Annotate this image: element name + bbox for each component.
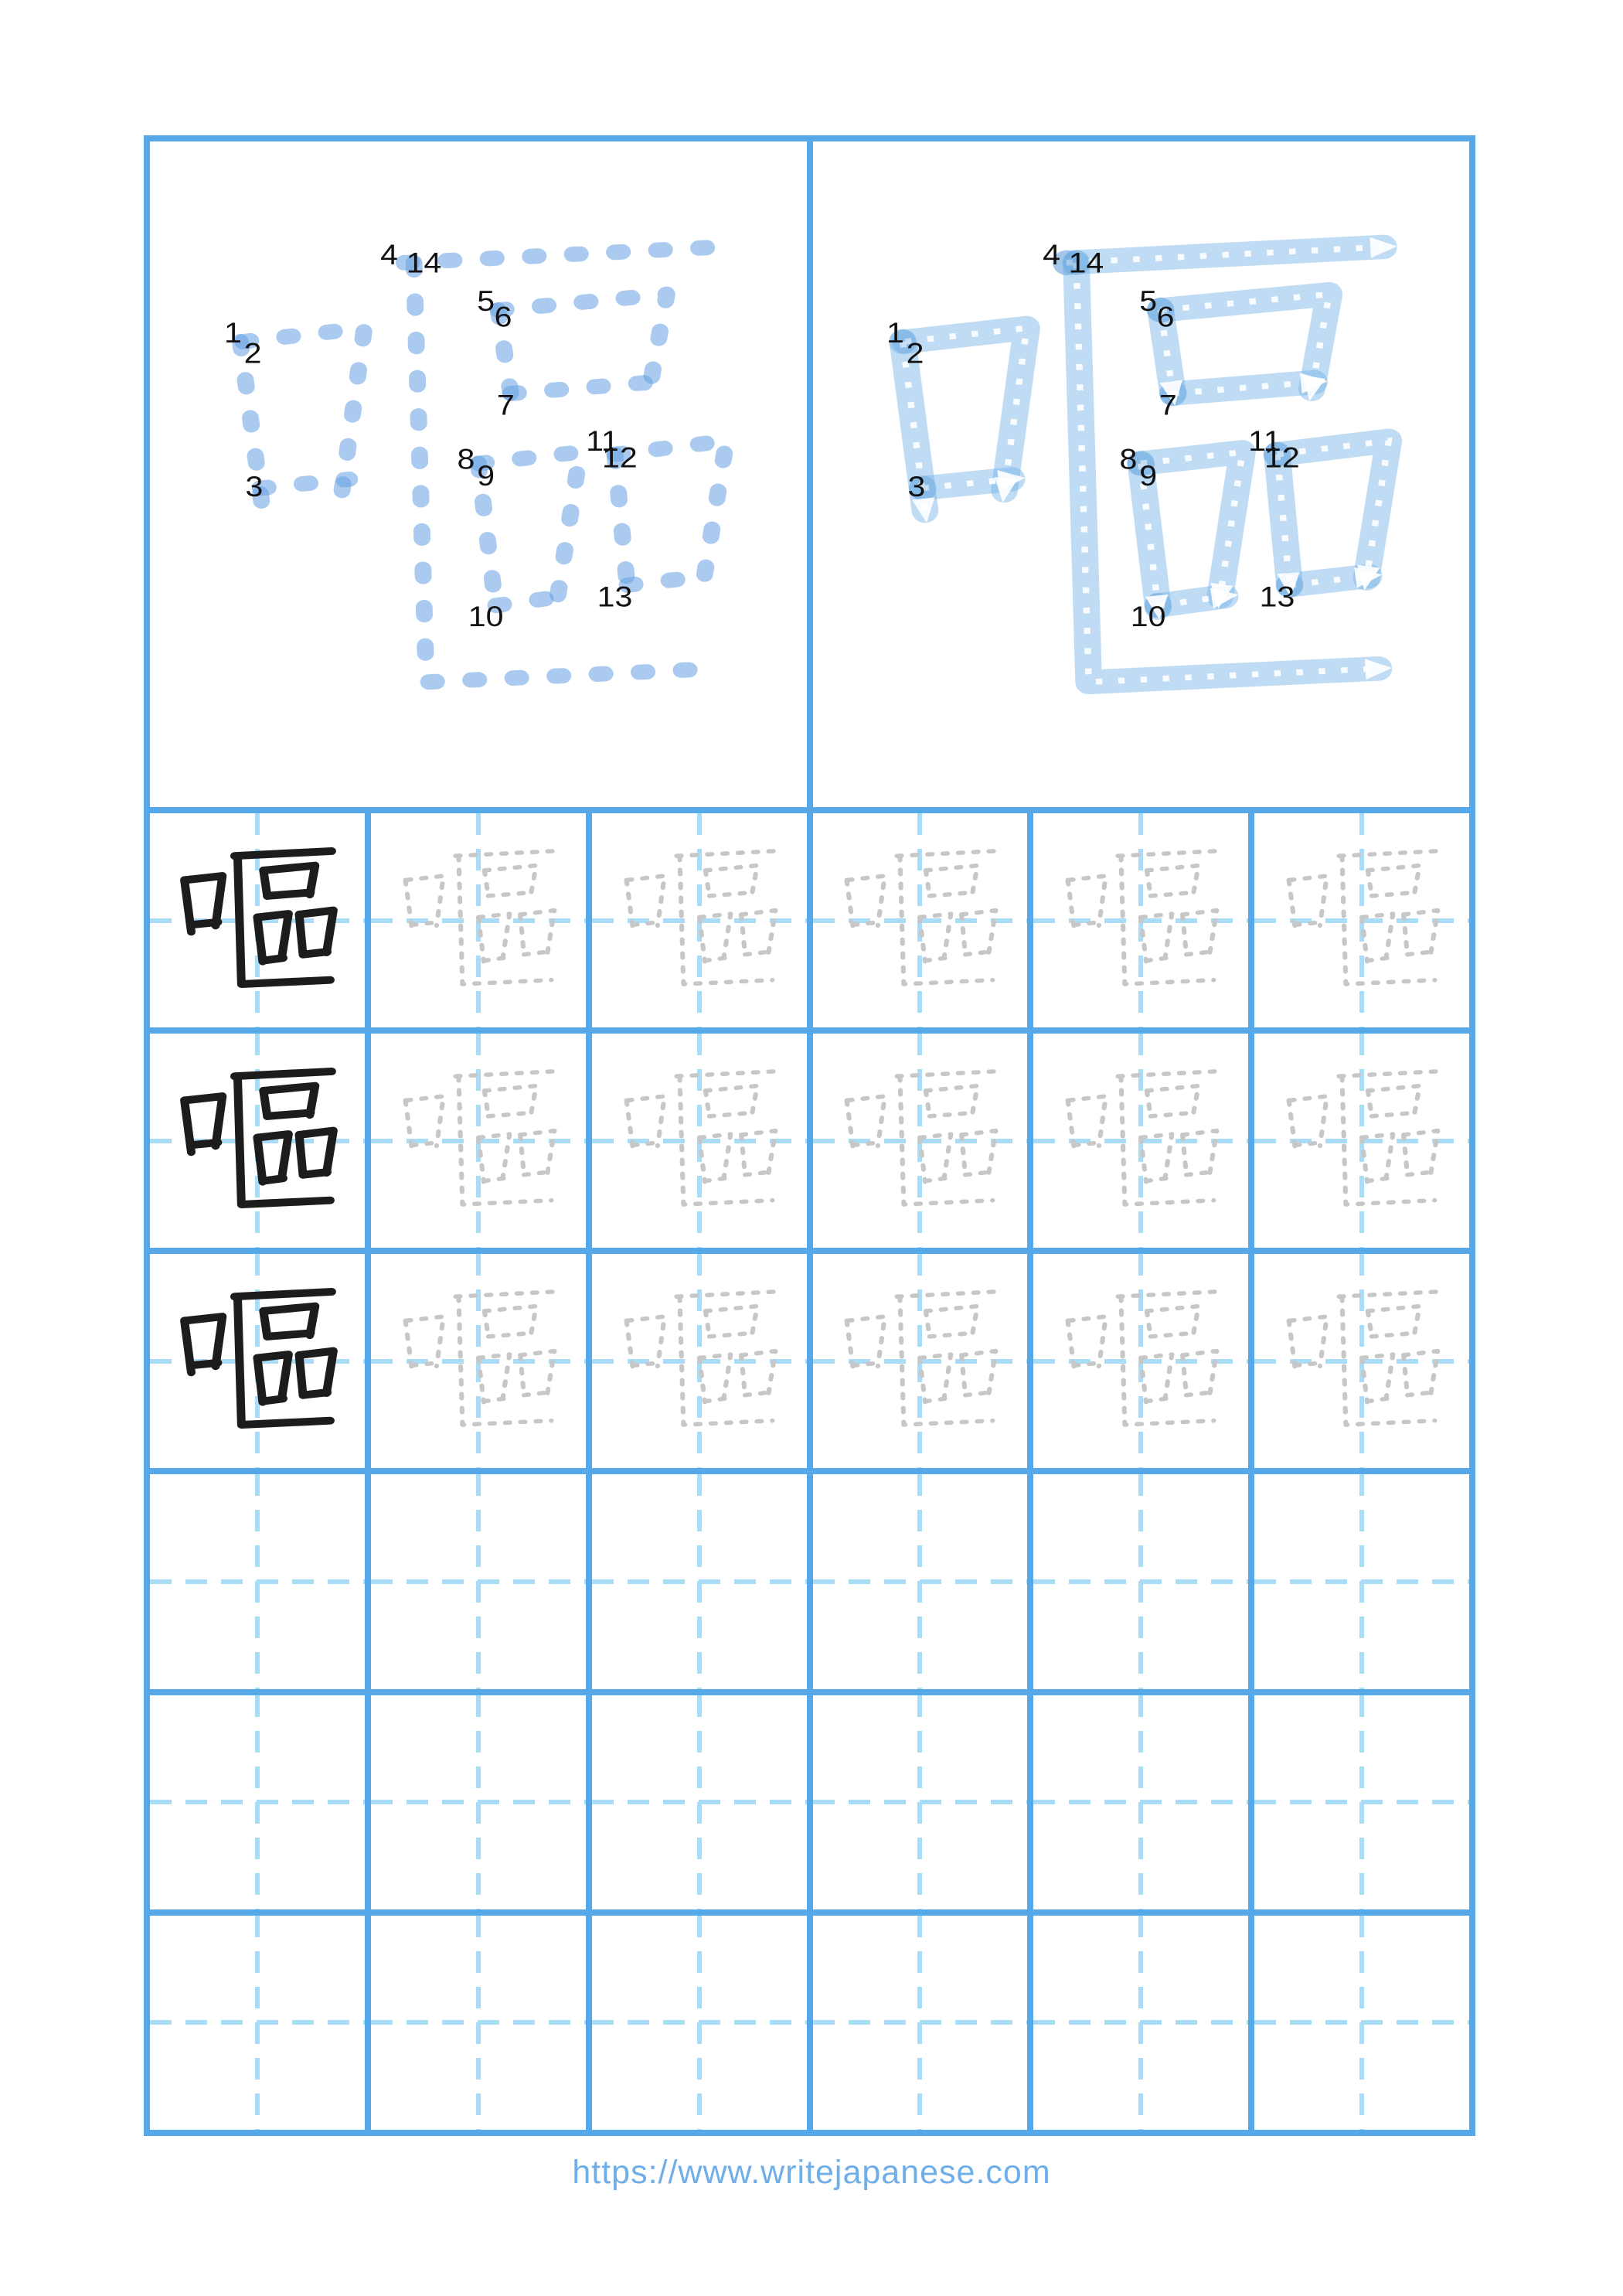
example-kanji-black [166,1058,349,1224]
practice-cell-r1c4 [813,813,1028,1027]
practice-cell-r5c6 [1254,1695,1469,1909]
practice-cell-r3c5 [1033,1254,1248,1468]
center-guide-vertical [1359,1695,1364,1909]
practice-cell-r6c1 [150,1916,365,2130]
practice-cell-r2c4 [813,1034,1028,1248]
practice-cell-r2c1 [150,1034,365,1248]
example-kanji-black [166,1279,349,1444]
trace-kanji-gray [829,838,1011,1003]
center-guide-vertical [917,1695,922,1909]
practice-cell-r2c6 [1254,1034,1469,1248]
trace-kanji-gray [608,1058,791,1224]
example-kanji-black [166,838,349,1003]
center-guide-vertical [1138,1474,1143,1688]
center-guide-vertical [476,1695,481,1909]
center-guide-vertical [255,1695,260,1909]
trace-kanji-gray [1050,1279,1232,1444]
center-guide-vertical [476,1474,481,1688]
kanji-stroke-order-guided [843,204,1438,745]
practice-cell-r6c4 [813,1916,1028,2130]
practice-cell-r1c3 [592,813,807,1027]
practice-cell-r3c4 [813,1254,1028,1468]
practice-cell-r1c2 [371,813,586,1027]
practice-cell-r2c3 [592,1034,807,1248]
center-guide-vertical [1359,1916,1364,2130]
center-guide-vertical [1138,1695,1143,1909]
stroke-order-diagram-guided [813,141,1470,807]
kanji-practice-worksheet: 1 2 3 4 5 6 7 8 9 10 11 12 13 14 [0,0,1623,2296]
practice-cell-r6c6 [1254,1916,1469,2130]
practice-cell-r3c1 [150,1254,365,1468]
practice-grid [144,807,1475,2136]
center-guide-vertical [697,1916,702,2130]
practice-cell-r5c1 [150,1695,365,1909]
trace-kanji-gray [387,1058,570,1224]
practice-cell-r6c3 [592,1916,807,2130]
center-guide-vertical [1359,1474,1364,1688]
practice-cell-r4c3 [592,1474,807,1688]
practice-cell-r5c3 [592,1695,807,1909]
center-guide-vertical [255,1474,260,1688]
practice-cell-r4c1 [150,1474,365,1688]
practice-cell-r3c6 [1254,1254,1469,1468]
practice-cell-r6c5 [1033,1916,1248,2130]
practice-cell-r2c5 [1033,1034,1248,1248]
stroke-order-section [144,135,1475,807]
stroke-order-diagram-dashed [150,141,813,807]
trace-kanji-gray [829,1279,1011,1444]
website-url: https://www.writejapanese.com [0,2154,1623,2192]
center-guide-vertical [697,1695,702,1909]
practice-cell-r4c5 [1033,1474,1248,1688]
practice-cell-r5c2 [371,1695,586,1909]
trace-kanji-gray [608,838,791,1003]
kanji-stroke-order-dashed [181,204,776,745]
center-guide-vertical [255,1916,260,2130]
trace-kanji-gray [387,838,570,1003]
practice-cell-r4c6 [1254,1474,1469,1688]
center-guide-vertical [476,1916,481,2130]
trace-kanji-gray [608,1279,791,1444]
practice-cell-r1c5 [1033,813,1248,1027]
practice-cell-r3c2 [371,1254,586,1468]
practice-cell-r5c4 [813,1695,1028,1909]
trace-kanji-gray [1050,1058,1232,1224]
center-guide-vertical [917,1474,922,1688]
trace-kanji-gray [387,1279,570,1444]
practice-cell-r4c4 [813,1474,1028,1688]
practice-cell-r6c2 [371,1916,586,2130]
practice-cell-r1c1 [150,813,365,1027]
center-guide-vertical [1138,1916,1143,2130]
practice-cell-r2c2 [371,1034,586,1248]
trace-kanji-gray [1271,1279,1453,1444]
trace-kanji-gray [1050,838,1232,1003]
practice-cell-r4c2 [371,1474,586,1688]
center-guide-vertical [917,1916,922,2130]
practice-cell-r1c6 [1254,813,1469,1027]
practice-cell-r3c3 [592,1254,807,1468]
practice-cell-r5c5 [1033,1695,1248,1909]
trace-kanji-gray [829,1058,1011,1224]
trace-kanji-gray [1271,838,1453,1003]
center-guide-vertical [697,1474,702,1688]
trace-kanji-gray [1271,1058,1453,1224]
